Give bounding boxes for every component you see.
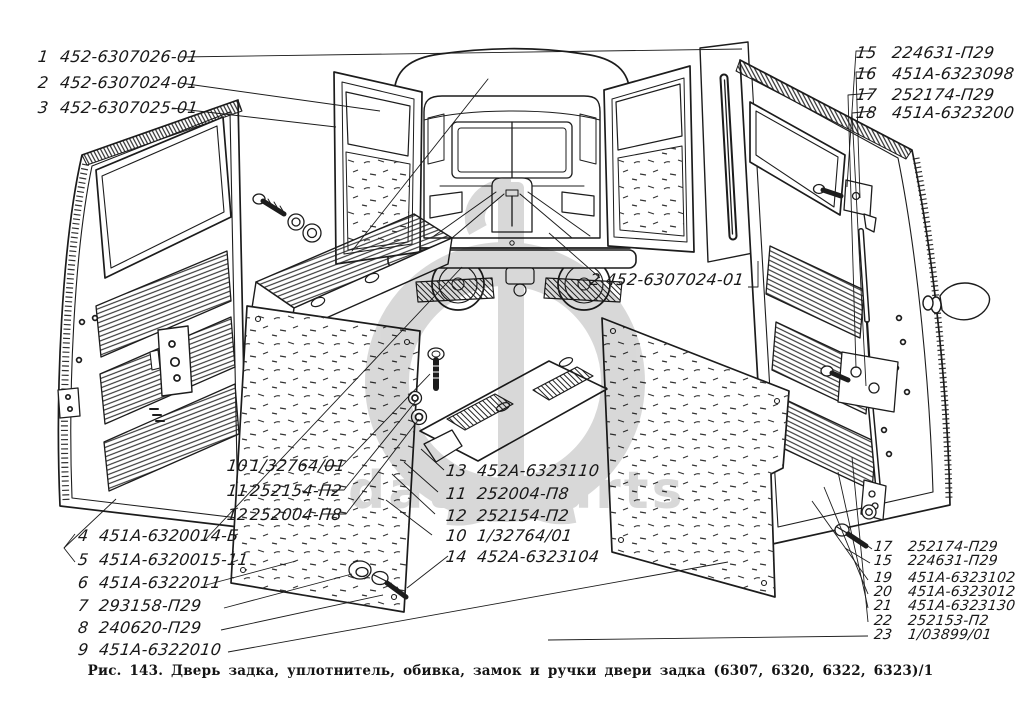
callout-number: 14 [445, 549, 478, 566]
callout-number: 2 [37, 75, 61, 92]
callout-number: 5 [77, 552, 100, 569]
figure-caption: Рис. 143. Дверь задка, уплотнитель, обив… [0, 663, 1021, 679]
callout-part-number: 452-6307024-01 [605, 272, 745, 289]
callout-part-number: 451А-6322011 [98, 575, 222, 592]
callout-row: 13452А-6323110 [445, 463, 600, 480]
callout-row: 18451А-6323200 [855, 105, 1015, 122]
callout-part-number: 451А-6323200 [891, 105, 1015, 122]
callout-row: 6451А-6322011 [77, 575, 222, 592]
callout-part-number: 1/03899/01 [907, 628, 993, 643]
callout-row: 9451А-6322010 [77, 642, 222, 659]
callout-row: 12252004-П8 [226, 507, 343, 524]
callout-part-number: 451А-6320014-Б [98, 528, 240, 545]
callout-part-number: 451А-6320015-11 [98, 552, 249, 569]
screw-washers-upper [253, 194, 321, 242]
callout-number: 1 [37, 49, 61, 66]
callout-part-number: 252174-П29 [891, 87, 995, 104]
callout-row: 14452А-6323104 [445, 549, 600, 566]
callout-part-number: 452-6307026-01 [59, 49, 199, 66]
callout-row: 3452-6307025-01 [37, 100, 199, 117]
callout-number: 3 [37, 100, 61, 117]
parts-catalog-page: data-parts 1452-6307026-01 2452-6307024-… [0, 0, 1021, 701]
callout-row: 15224631-П29 [873, 554, 999, 569]
callout-number: 17 [855, 87, 893, 104]
callout-part-number: 224631-П29 [907, 554, 999, 569]
callout-row: 231/03899/01 [873, 628, 993, 643]
callout-part-number: 252004-П8 [476, 486, 570, 503]
watermark-stem [498, 182, 524, 502]
callout-part-number: 452-6307025-01 [59, 100, 199, 117]
callout-part-number: 1/32764/01 [249, 458, 346, 475]
callout-part-number: 452-6307024-01 [59, 75, 199, 92]
callout-number: 4 [77, 528, 100, 545]
left-door [58, 100, 247, 528]
callout-number: 23 [873, 628, 909, 643]
callout-part-number: 451А-6323098 [891, 66, 1015, 83]
callout-part-number: 451А-6323130 [907, 599, 1016, 614]
callout-row: 1452-6307026-01 [37, 49, 199, 66]
callout-number: 6 [77, 575, 100, 592]
callout-row: 8240620-П29 [77, 620, 202, 637]
callout-number: 11 [226, 483, 251, 500]
callout-row: 2452-6307024-01 [37, 75, 199, 92]
callout-part-number: 240620-П29 [98, 620, 202, 637]
callout-number: 10 [445, 528, 478, 545]
callout-row: 101/32764/01 [445, 528, 573, 545]
callout-row: 5451А-6320015-11 [77, 552, 249, 569]
callout-row: 7293158-П29 [77, 598, 202, 615]
callout-row: 12252154-П2 [445, 508, 570, 525]
callout-number: 15 [873, 554, 909, 569]
callout-part-number: 293158-П29 [98, 598, 202, 615]
callout-row: 4451А-6320014-Б [77, 528, 240, 545]
callout-part-number: 252154-П2 [476, 508, 570, 525]
callout-number: 13 [445, 463, 478, 480]
callout-row: 2452-6307024-01 [589, 272, 745, 289]
callout-row: 101/32764/01 [226, 458, 346, 475]
callout-part-number: 451А-6322010 [98, 642, 222, 659]
callout-part-number: 252154-П2 [249, 483, 343, 500]
callout-number: 16 [855, 66, 893, 83]
callout-number: 9 [77, 642, 100, 659]
callout-number: 18 [855, 105, 893, 122]
callout-number: 8 [77, 620, 100, 637]
callout-number: 21 [873, 599, 909, 614]
callout-number: 10 [226, 458, 251, 475]
callout-part-number: 252004-П8 [249, 507, 343, 524]
callout-row: 21451А-6323130 [873, 599, 1016, 614]
callout-part-number: 452А-6323110 [476, 463, 600, 480]
callout-row: 11252154-П2 [226, 483, 343, 500]
callout-row: 11252004-П8 [445, 486, 570, 503]
callout-number: 15 [855, 45, 893, 62]
callout-part-number: 224631-П29 [891, 45, 995, 62]
callout-row: 17252174-П29 [855, 87, 995, 104]
callout-row: 16451А-6323098 [855, 66, 1015, 83]
callout-number: 12 [445, 508, 478, 525]
callout-number: 7 [77, 598, 100, 615]
callout-part-number: 1/32764/01 [476, 528, 573, 545]
callout-row: 15224631-П29 [855, 45, 995, 62]
callout-number: 12 [226, 507, 251, 524]
callout-part-number: 452А-6323104 [476, 549, 600, 566]
callout-number: 11 [445, 486, 478, 503]
